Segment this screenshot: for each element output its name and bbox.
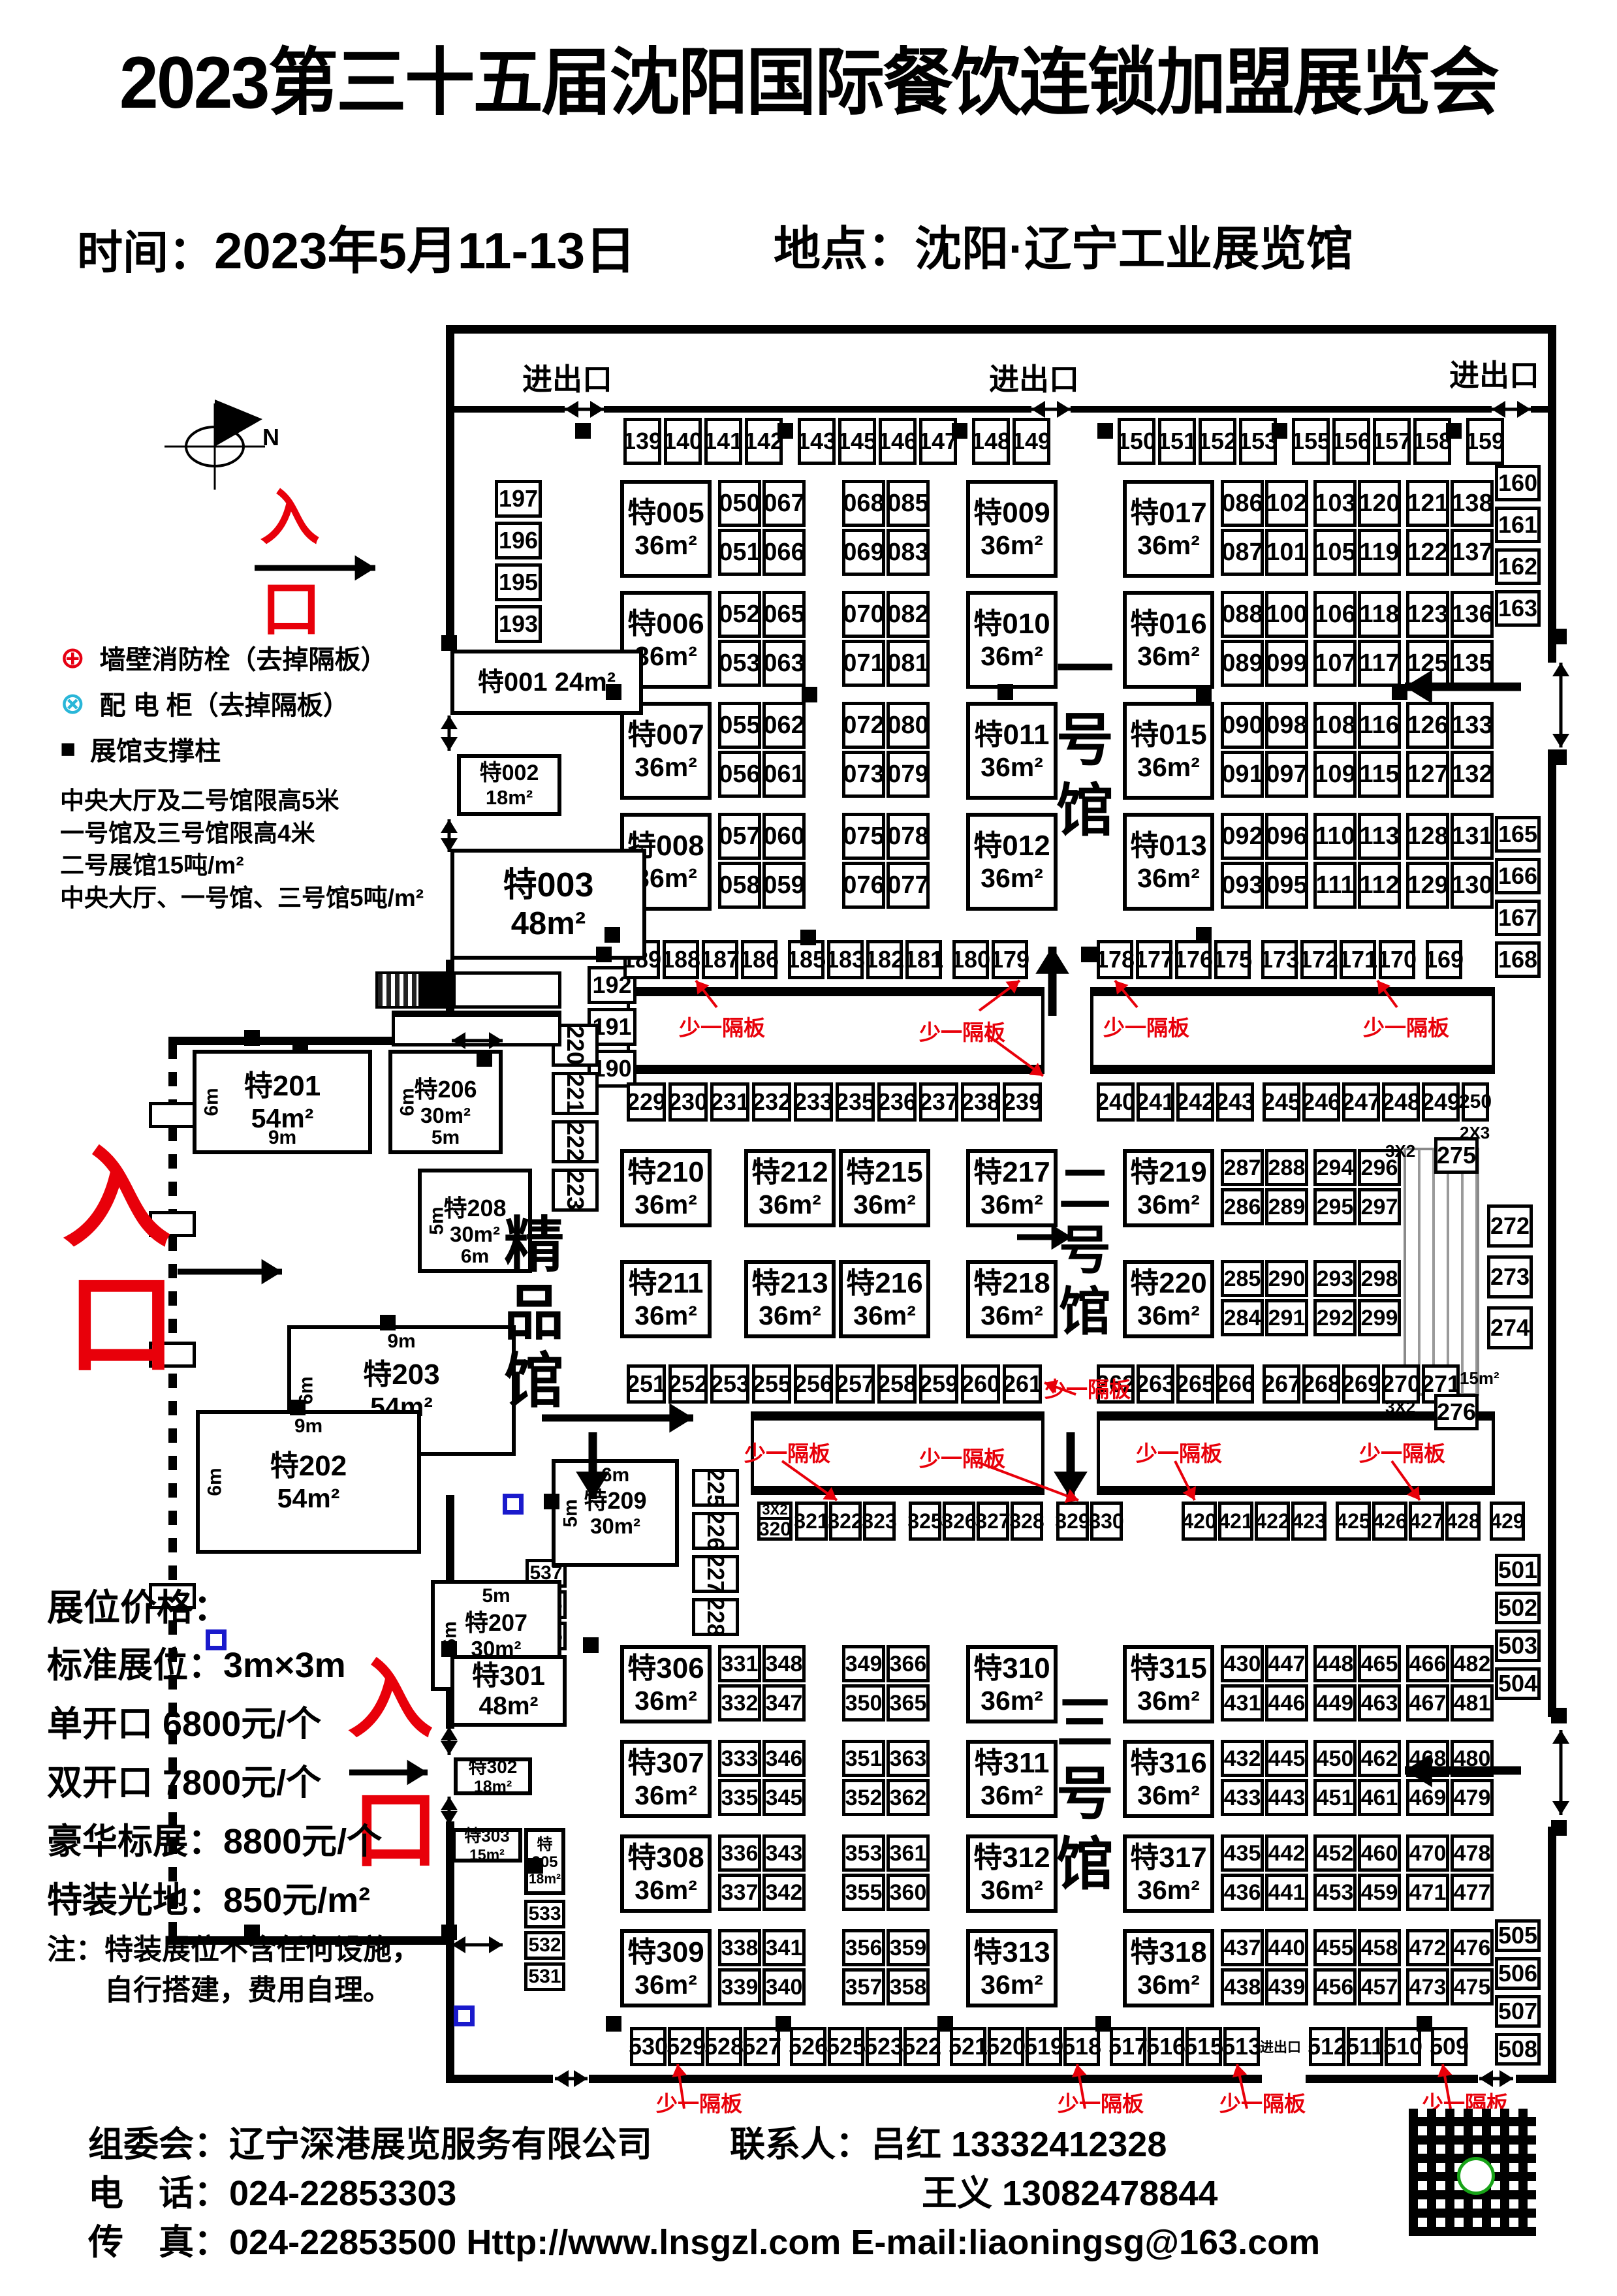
price-line: 展位价格： [47, 1579, 230, 1631]
contact-line: 王义 13082478844 [922, 2164, 1217, 2216]
contact-line: 电 话：024-22853303 [88, 2164, 456, 2216]
arrow-head [1437, 2064, 1452, 2077]
arrow-head [441, 1797, 458, 1810]
arrow-head [1552, 1801, 1569, 1815]
contact-line: 联系人：吕红 13332412328 [730, 2115, 1167, 2167]
arrow-head [590, 401, 604, 418]
arrow-head [1499, 2070, 1513, 2087]
price-line: 注：特装展位不含任何设施， [47, 1926, 420, 1968]
arrow-head [696, 981, 709, 995]
arrow-head [669, 1403, 693, 1432]
arrow-head [576, 1471, 610, 1499]
arrow-head [1407, 1486, 1420, 1500]
arrow-head [823, 1487, 837, 1500]
arrow-head [1552, 1730, 1569, 1744]
arrow-head [262, 1259, 282, 1285]
arrow-head [489, 1032, 503, 1049]
arrow-head [1492, 401, 1505, 418]
arrow-head [1552, 734, 1569, 747]
arrow-head [452, 1032, 465, 1049]
compass-icon [165, 400, 265, 490]
price-line: 特装光地：850元/m² [47, 1871, 370, 1923]
arrow-head [1517, 401, 1531, 418]
arrow-head [1005, 981, 1020, 994]
contact-line: 传 真：024-22853500 Http://www.lnsgzl.com E… [88, 2213, 1320, 2265]
price-line: 单开口 6800元/个 [47, 1695, 321, 1746]
arrow-head [441, 819, 458, 833]
arrow-head [1479, 2070, 1493, 2087]
arrow-head [441, 737, 458, 751]
arrow-head [1405, 1753, 1432, 1787]
arrow-head [441, 838, 458, 852]
arrow-head [1057, 401, 1071, 418]
arrow-head [1405, 670, 1432, 704]
arrow-head [1029, 1063, 1043, 1076]
arrow-head [672, 2064, 687, 2077]
arrow-head [407, 1760, 428, 1785]
price-line: 自行搭建，费用自理。 [47, 1966, 392, 2008]
arrow-head [555, 2070, 569, 2087]
contact-line: 组委会：辽宁深港展览服务有限公司 [88, 2115, 652, 2167]
arrow-head [1052, 1225, 1072, 1250]
arrow-head [441, 1741, 458, 1755]
arrow-head [441, 1727, 458, 1740]
arrow-head [565, 401, 578, 418]
arrow-head [1232, 2064, 1247, 2077]
arrow-head [441, 716, 458, 729]
arrow-head [1552, 663, 1569, 676]
arrow-head [574, 2070, 588, 2087]
arrow-head [1031, 401, 1045, 418]
arrow-head [452, 1936, 465, 1953]
price-line: 豪华标展：8800元/个 [47, 1812, 382, 1864]
arrow-head [441, 1811, 458, 1825]
arrow-head [355, 556, 375, 581]
price-line: 双开口 7800元/个 [47, 1753, 321, 1805]
exhibition-floorplan-flyer: 2023第三十五届沈阳国际餐饮连锁加盟展览会 时间：2023年5月11-13日 … [0, 0, 1617, 2296]
arrow-head [1035, 947, 1069, 974]
arrow-head [489, 1936, 503, 1953]
price-line: 标准展位：3m×3m [47, 1636, 346, 1688]
arrow-head [1377, 981, 1390, 995]
arrow-head [1072, 2064, 1086, 2077]
